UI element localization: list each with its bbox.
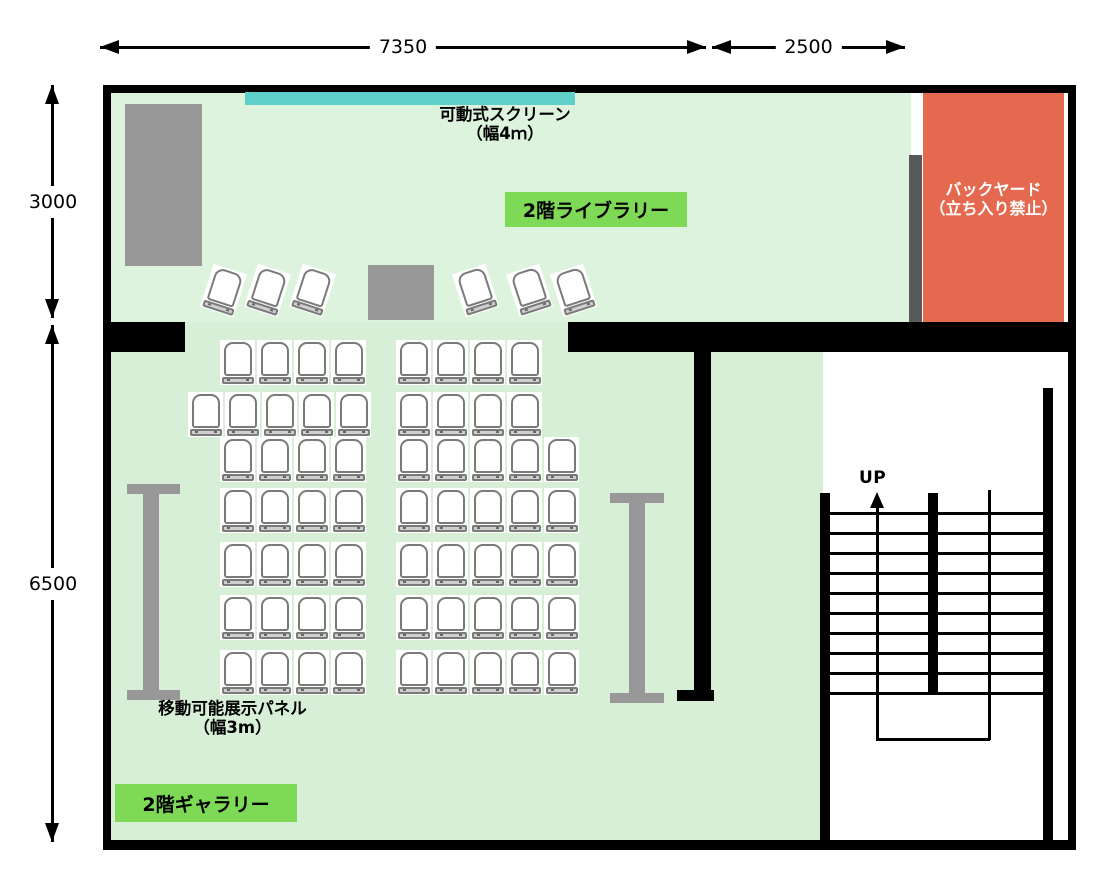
chair	[433, 437, 468, 482]
wall-left	[103, 85, 111, 850]
chair-base	[435, 429, 467, 436]
stair-walkline-bottom	[876, 738, 990, 741]
chair	[336, 392, 371, 437]
chair	[470, 340, 505, 385]
library-shelf	[125, 104, 202, 266]
chair	[544, 488, 579, 533]
chair	[331, 595, 366, 640]
chair-base	[435, 474, 467, 481]
wall-bottom	[103, 840, 1076, 850]
chair-seat	[298, 342, 326, 376]
chair-seat	[511, 597, 539, 631]
exhibit-panel-left-stem	[143, 490, 159, 694]
chair-base	[509, 377, 541, 384]
screen-label-line1: 可動式スクリーン	[380, 106, 630, 125]
chair-seat	[400, 490, 428, 524]
chair-seat	[261, 342, 289, 376]
wall-partition-foot	[677, 690, 714, 701]
chair	[257, 650, 292, 695]
wall-right	[1068, 85, 1076, 850]
chair-base	[509, 687, 541, 694]
chair-seat	[298, 652, 326, 686]
chair	[257, 595, 292, 640]
chair-seat	[335, 652, 363, 686]
chair-seat	[192, 394, 220, 428]
dimension-arrow-up	[45, 85, 59, 104]
chair-base	[333, 687, 365, 694]
library-label: 2階ライブラリー	[505, 192, 687, 227]
chair-seat	[437, 652, 465, 686]
chair	[331, 542, 366, 587]
chair	[188, 392, 223, 437]
chair	[433, 595, 468, 640]
exhibit-panel-right-stem	[629, 499, 645, 697]
chair-seat	[303, 394, 331, 428]
chair-seat	[400, 652, 428, 686]
chair-base	[333, 632, 365, 639]
chair-seat	[224, 544, 252, 578]
chair-base	[296, 525, 328, 532]
chair	[470, 542, 505, 587]
dimension-label: 6500	[26, 568, 80, 600]
chair	[257, 437, 292, 482]
chair-base	[338, 429, 370, 436]
dimension-label: 2500	[775, 34, 841, 60]
stair-tread	[830, 632, 1043, 635]
chair	[433, 650, 468, 695]
chair	[220, 340, 255, 385]
chair-base	[333, 579, 365, 586]
chair-seat	[224, 342, 252, 376]
chair	[396, 340, 431, 385]
chair	[220, 488, 255, 533]
chair	[220, 542, 255, 587]
chair	[225, 392, 260, 437]
chair-seat	[511, 439, 539, 473]
chair-seat	[474, 439, 502, 473]
chair-seat	[437, 490, 465, 524]
chair-seat	[261, 544, 289, 578]
chair-seat	[224, 439, 252, 473]
chair-base	[472, 377, 504, 384]
chair	[470, 392, 505, 437]
chair-seat	[298, 439, 326, 473]
chair-base	[259, 579, 291, 586]
stair-rail-left	[820, 493, 830, 840]
chair	[433, 392, 468, 437]
chair-base	[472, 525, 504, 532]
chair-seat	[437, 394, 465, 428]
stair-tread	[830, 572, 1043, 575]
chair	[507, 392, 542, 437]
chair-seat	[511, 652, 539, 686]
chair-seat	[400, 439, 428, 473]
chair-base	[435, 632, 467, 639]
chair	[294, 650, 329, 695]
chair	[507, 488, 542, 533]
chair-base	[259, 687, 291, 694]
chair-base	[435, 377, 467, 384]
chair-seat	[437, 342, 465, 376]
chair-base	[296, 632, 328, 639]
chair-seat	[474, 394, 502, 428]
backyard-label-line2: （立ち入り禁止）	[923, 199, 1064, 218]
chair-base	[398, 579, 430, 586]
chair-seat	[335, 490, 363, 524]
chair-base	[546, 632, 578, 639]
chair-base	[398, 377, 430, 384]
wall-mid-right-segment	[568, 322, 1076, 352]
chair-base	[398, 474, 430, 481]
backyard-label: バックヤード （立ち入り禁止）	[923, 180, 1064, 218]
chair	[507, 650, 542, 695]
backyard-partition-wall	[909, 155, 922, 322]
chair-seat	[400, 342, 428, 376]
chair	[470, 437, 505, 482]
chair-seat	[266, 394, 294, 428]
chair-base	[222, 687, 254, 694]
chair-base	[472, 474, 504, 481]
chair-seat	[298, 490, 326, 524]
chair-seat	[400, 597, 428, 631]
chair-base	[333, 377, 365, 384]
chair-base	[546, 474, 578, 481]
chair-base	[190, 429, 222, 436]
chair-base	[435, 687, 467, 694]
movable-screen	[245, 92, 575, 105]
stair-tread	[830, 652, 1043, 655]
chair	[262, 392, 297, 437]
wall-mid-left-segment	[103, 322, 185, 352]
dimension-arrow-up	[45, 325, 59, 344]
chair-seat	[335, 544, 363, 578]
chair	[507, 437, 542, 482]
chair	[433, 488, 468, 533]
chair	[294, 340, 329, 385]
stairs-up-label: UP	[859, 468, 886, 488]
chair-seat	[335, 342, 363, 376]
chair-base	[398, 525, 430, 532]
chair	[331, 650, 366, 695]
chair	[294, 488, 329, 533]
chair-base	[296, 377, 328, 384]
stair-tread	[830, 612, 1043, 615]
panel-label-line1: 移動可能展示パネル	[130, 700, 335, 719]
podium	[368, 265, 434, 320]
chair-seat	[548, 544, 576, 578]
chair	[331, 340, 366, 385]
chair	[396, 542, 431, 587]
chair-base	[296, 687, 328, 694]
chair-base	[227, 429, 259, 436]
stair-tread	[830, 672, 1043, 675]
chair	[220, 650, 255, 695]
chair-base	[472, 632, 504, 639]
chair	[544, 437, 579, 482]
chair-seat	[340, 394, 368, 428]
chair-seat	[261, 597, 289, 631]
chair-seat	[511, 394, 539, 428]
stair-tread	[830, 532, 1043, 535]
chair-base	[259, 632, 291, 639]
chair-base	[222, 632, 254, 639]
chair	[257, 488, 292, 533]
chair	[331, 437, 366, 482]
exhibit-panel-right-bottom	[610, 693, 664, 703]
chair-base	[472, 687, 504, 694]
chair-seat	[224, 652, 252, 686]
stair-tread	[830, 512, 1043, 515]
backyard-label-line1: バックヤード	[923, 180, 1064, 199]
panel-label: 移動可能展示パネル （幅3m）	[130, 700, 335, 738]
chair-seat	[261, 490, 289, 524]
chair-seat	[400, 544, 428, 578]
chair-base	[264, 429, 296, 436]
floor-plan: UP 可動式スクリーン （幅4ｍ） 2階ライブラリー バックヤード （立ち入り禁…	[0, 0, 1120, 894]
chair-seat	[548, 597, 576, 631]
chair	[396, 392, 431, 437]
chair	[396, 488, 431, 533]
chair	[544, 650, 579, 695]
chair-seat	[511, 544, 539, 578]
chair	[396, 650, 431, 695]
chair-seat	[224, 490, 252, 524]
chair-seat	[298, 544, 326, 578]
chair	[257, 340, 292, 385]
chair-base	[546, 687, 578, 694]
chair	[257, 542, 292, 587]
chair	[507, 595, 542, 640]
chair	[294, 595, 329, 640]
chair-seat	[548, 439, 576, 473]
chair-seat	[437, 439, 465, 473]
chair-base	[222, 525, 254, 532]
chair-base	[398, 632, 430, 639]
chair	[220, 437, 255, 482]
chair-base	[259, 377, 291, 384]
chair-seat	[400, 394, 428, 428]
dimension-arrow-down	[45, 299, 59, 318]
gallery-label: 2階ギャラリー	[115, 784, 297, 822]
chair	[470, 488, 505, 533]
stair-walkline-right	[988, 490, 991, 740]
chair-base	[301, 429, 333, 436]
chair-seat	[474, 544, 502, 578]
chair	[433, 542, 468, 587]
chair	[294, 437, 329, 482]
chair-seat	[511, 342, 539, 376]
chair-base	[509, 632, 541, 639]
up-arrow-icon	[870, 492, 884, 508]
chair-base	[509, 579, 541, 586]
chair-seat	[335, 597, 363, 631]
chair-base	[296, 474, 328, 481]
chair-seat	[474, 652, 502, 686]
chair-base	[398, 687, 430, 694]
chair-seat	[474, 342, 502, 376]
chair-base	[296, 579, 328, 586]
stair-tread	[830, 552, 1043, 555]
chair-base	[546, 525, 578, 532]
chair-seat	[229, 394, 257, 428]
screen-label-line2: （幅4ｍ）	[380, 125, 630, 144]
chair-base	[509, 474, 541, 481]
chair-base	[259, 474, 291, 481]
chair	[331, 488, 366, 533]
chair	[507, 542, 542, 587]
dimension-label: 7350	[370, 34, 436, 60]
chair-seat	[548, 490, 576, 524]
chair	[507, 340, 542, 385]
chair-seat	[261, 439, 289, 473]
dimension-label: 3000	[26, 186, 80, 218]
chair-base	[435, 525, 467, 532]
chair-seat	[474, 490, 502, 524]
chair-base	[222, 579, 254, 586]
chair	[294, 542, 329, 587]
chair	[544, 595, 579, 640]
dimension-arrow-left	[712, 40, 731, 54]
dimension-arrow-right	[886, 40, 905, 54]
chair-seat	[298, 597, 326, 631]
chair-seat	[224, 597, 252, 631]
chair-base	[398, 429, 430, 436]
chair	[220, 595, 255, 640]
chair-seat	[474, 597, 502, 631]
dimension-arrow-down	[45, 823, 59, 842]
chair-base	[472, 429, 504, 436]
chair-seat	[437, 597, 465, 631]
chair-base	[222, 474, 254, 481]
chair-base	[472, 579, 504, 586]
chair-base	[435, 579, 467, 586]
chair	[433, 340, 468, 385]
chair-base	[333, 474, 365, 481]
chair	[396, 437, 431, 482]
chair-base	[333, 525, 365, 532]
stair-tread	[830, 692, 1043, 695]
chair-base	[509, 429, 541, 436]
chair	[470, 595, 505, 640]
chair-seat	[261, 652, 289, 686]
stair-walkline-left	[876, 497, 879, 740]
stair-tread	[830, 592, 1043, 595]
chair-seat	[437, 544, 465, 578]
chair-seat	[511, 490, 539, 524]
dimension-arrow-left	[100, 40, 119, 54]
wall-partition-vertical	[694, 352, 711, 697]
screen-label: 可動式スクリーン （幅4ｍ）	[380, 106, 630, 144]
panel-label-line2: （幅3m）	[130, 719, 335, 738]
chair-base	[509, 525, 541, 532]
chair	[396, 595, 431, 640]
dimension-arrow-right	[687, 40, 706, 54]
chair-base	[259, 525, 291, 532]
chair-base	[222, 377, 254, 384]
chair	[470, 650, 505, 695]
chair-seat	[335, 439, 363, 473]
chair-base	[546, 579, 578, 586]
stair-rail-right	[1043, 388, 1053, 840]
chair-seat	[548, 652, 576, 686]
chair	[544, 542, 579, 587]
chair	[299, 392, 334, 437]
